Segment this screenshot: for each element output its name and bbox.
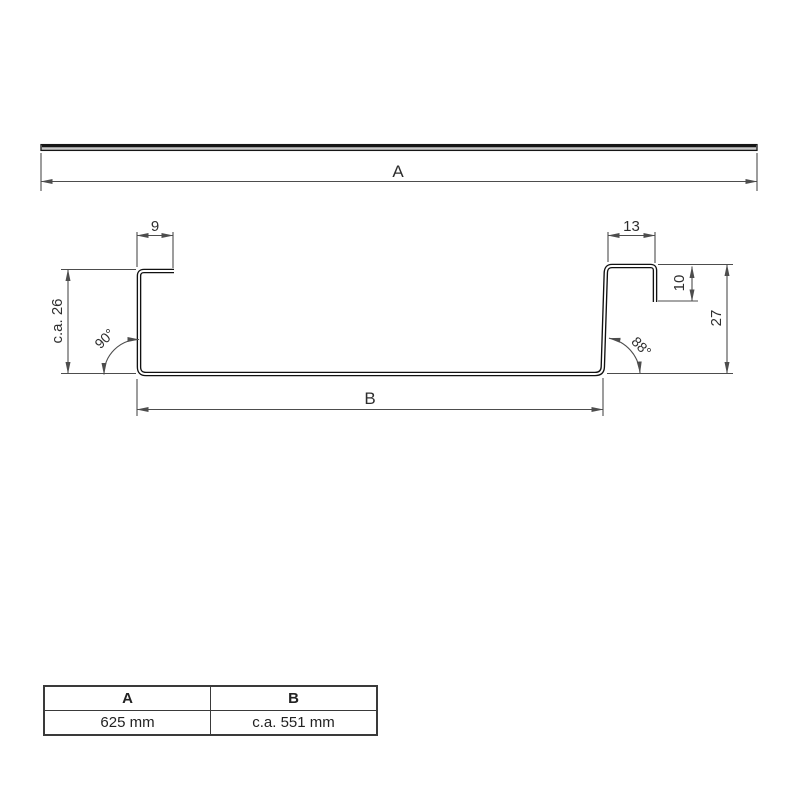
dimension-label-left-height: c.a. 26 bbox=[49, 298, 66, 343]
dimension-label-b: B bbox=[364, 389, 375, 408]
drawing-page: A 9 13 c.a. 26 bbox=[0, 0, 800, 800]
profile-outline-inner bbox=[139, 266, 655, 374]
dimensions-table: A B 625 mm c.a. 551 mm bbox=[43, 685, 378, 736]
dimension-label-left-flange: 9 bbox=[151, 218, 159, 235]
sheet-top-view bbox=[41, 145, 757, 151]
profile-technical-drawing: A 9 13 c.a. 26 bbox=[0, 0, 800, 800]
table-header-row: A B bbox=[44, 686, 377, 711]
profile-outline-outer bbox=[139, 266, 655, 374]
angle-label-right: 88° bbox=[628, 333, 654, 359]
table-header-a: A bbox=[44, 686, 211, 711]
table-value-row: 625 mm c.a. 551 mm bbox=[44, 711, 377, 736]
dimension-label-right-flange: 13 bbox=[623, 218, 640, 235]
dimension-right-flange bbox=[608, 232, 655, 263]
table-value-b: c.a. 551 mm bbox=[211, 711, 378, 736]
dimension-left-height bbox=[61, 270, 136, 374]
dimension-label-right-height: 27 bbox=[708, 310, 725, 327]
angle-label-left: 90° bbox=[91, 325, 117, 351]
table-value-a: 625 mm bbox=[44, 711, 211, 736]
dimension-label-a: A bbox=[392, 162, 404, 181]
profile-cross-section bbox=[139, 266, 655, 374]
table-header-b: B bbox=[211, 686, 378, 711]
dimension-label-hook-depth: 10 bbox=[671, 275, 688, 292]
dimension-left-flange bbox=[137, 232, 173, 268]
